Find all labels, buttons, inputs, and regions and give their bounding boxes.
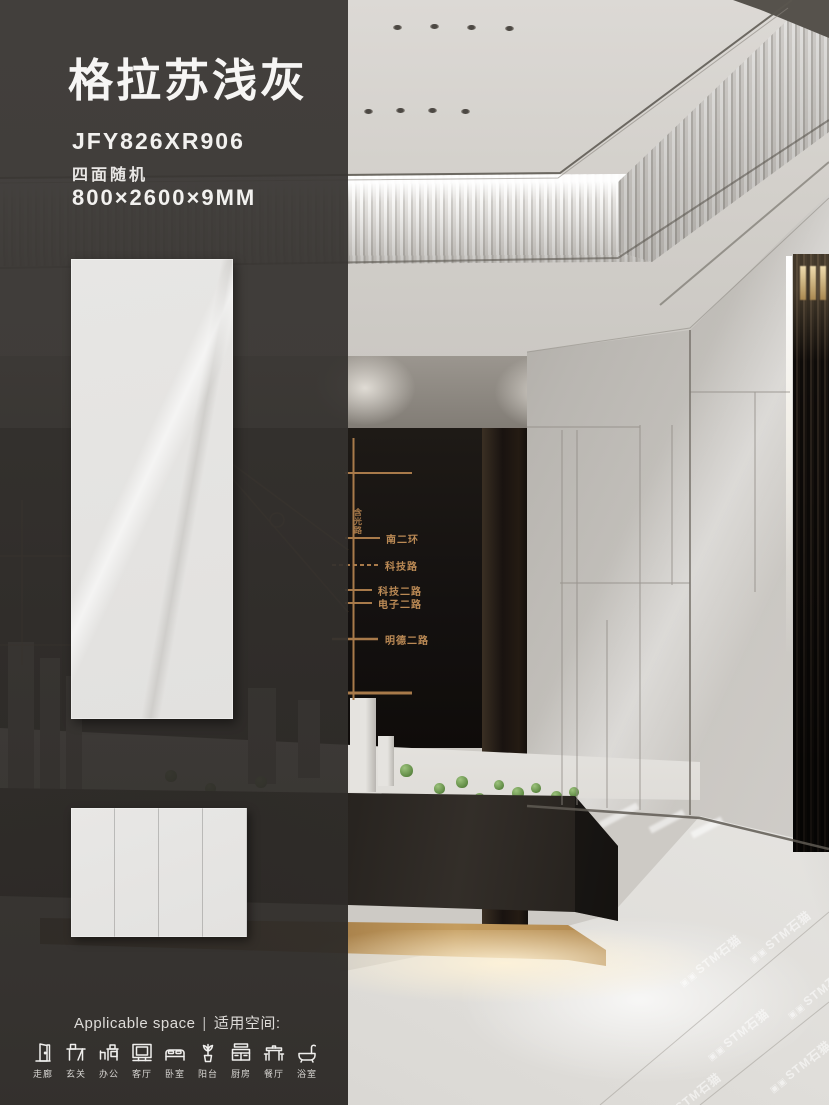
space-balcony: 阳台 [193, 1040, 223, 1080]
product-dimensions: 800×2600×9MM [72, 185, 256, 211]
applicable-space-icons: 走廊 玄关 办公 客厅 卧室 [28, 1040, 322, 1080]
slat-lantern-light [800, 266, 806, 300]
space-label: 阳台 [198, 1067, 218, 1080]
gold-band-floor-glow [290, 930, 720, 1004]
surface-note: 四面随机 [72, 161, 148, 185]
space-bathroom: 浴室 [292, 1040, 322, 1080]
model-tree [569, 787, 579, 797]
space-entry: 玄关 [61, 1040, 91, 1080]
applicable-space-en: Applicable space [74, 1015, 195, 1032]
space-label: 卧室 [165, 1067, 185, 1080]
led-edge-strip [786, 256, 792, 656]
office-desk-icon [97, 1040, 121, 1064]
slat-lantern-light [820, 266, 826, 300]
space-label: 餐厅 [264, 1067, 284, 1080]
ceiling-spotlight-icon [505, 26, 514, 31]
space-label: 客厅 [132, 1067, 152, 1080]
applicable-space-heading: Applicable space|适用空间: [74, 1012, 281, 1033]
space-corridor: 走廊 [28, 1040, 58, 1080]
corridor-door-icon [31, 1040, 55, 1064]
space-bedroom: 卧室 [160, 1040, 190, 1080]
ceiling-spotlight-icon [467, 25, 476, 30]
product-poster: 南二环 科技路 科技二路 电子二路 明德二路 含光路 ▣▣STM石猫 ▣▣STM… [0, 0, 829, 1105]
ceiling-spotlight-icon [396, 108, 405, 113]
ceiling-spotlight-icon [430, 24, 439, 29]
heading-separator: | [202, 1015, 206, 1032]
ceiling-spotlight-icon [393, 25, 402, 30]
applicable-space-zh: 适用空间: [214, 1015, 281, 1032]
space-label: 走廊 [33, 1067, 53, 1080]
model-building [350, 698, 376, 792]
model-tree [531, 783, 541, 793]
dining-table-icon [262, 1040, 286, 1064]
model-tree [400, 764, 413, 777]
tile-slab-sample [71, 259, 233, 719]
product-code: JFY826XR906 [72, 128, 245, 155]
space-office: 办公 [94, 1040, 124, 1080]
kitchen-cabinet-icon [229, 1040, 253, 1064]
space-living-room: 客厅 [127, 1040, 157, 1080]
tile-panel-sample [71, 808, 247, 937]
bedroom-bed-icon [163, 1040, 187, 1064]
bathtub-icon [295, 1040, 319, 1064]
ceiling-spotlight-icon [364, 109, 373, 114]
ceiling-spotlight-icon [461, 109, 470, 114]
model-tree [434, 783, 445, 794]
product-title: 格拉苏浅灰 [68, 44, 308, 109]
entry-console-icon [64, 1040, 88, 1064]
living-room-tv-icon [130, 1040, 154, 1064]
balcony-plant-icon [196, 1040, 220, 1064]
slat-lantern-light [810, 266, 816, 300]
model-tree [494, 780, 504, 790]
space-label: 浴室 [297, 1067, 317, 1080]
slat-screen [793, 254, 829, 852]
model-tree [456, 776, 468, 788]
model-building [378, 736, 394, 786]
ceiling-spotlight-icon [428, 108, 437, 113]
space-label: 玄关 [66, 1067, 86, 1080]
space-label: 办公 [99, 1067, 119, 1080]
space-dining-room: 餐厅 [259, 1040, 289, 1080]
space-kitchen: 厨房 [226, 1040, 256, 1080]
space-label: 厨房 [231, 1067, 251, 1080]
